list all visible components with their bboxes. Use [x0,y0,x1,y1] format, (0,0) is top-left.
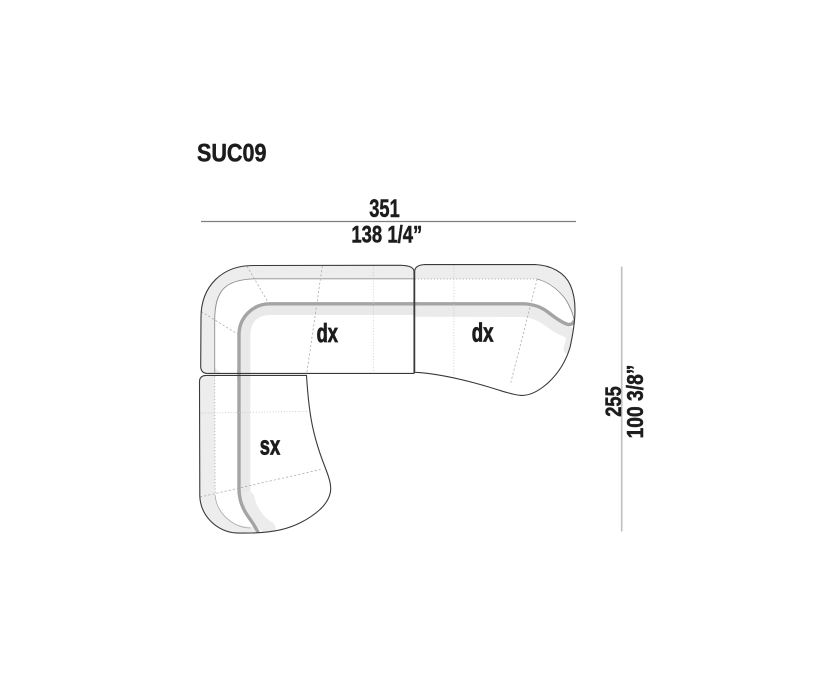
svg-text:100 3/8”: 100 3/8” [622,365,648,439]
svg-text:138 1/4”: 138 1/4” [351,221,422,248]
svg-text:sx: sx [260,431,281,460]
svg-text:351: 351 [369,194,399,223]
svg-text:dx: dx [472,319,494,348]
svg-text:SUC09: SUC09 [197,139,266,167]
svg-text:dx: dx [317,319,339,348]
